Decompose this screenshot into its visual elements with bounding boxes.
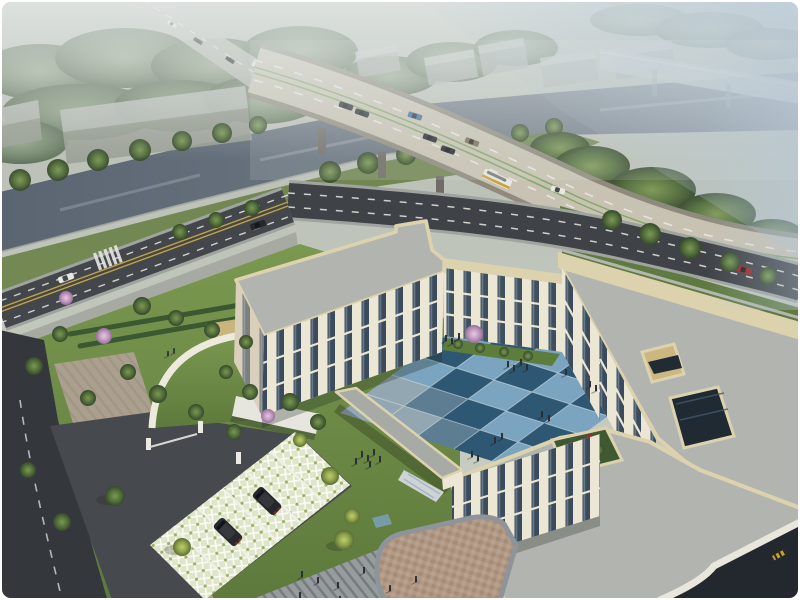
architectural-rendering: Hazy aerial rendering of a cream three-s… [2,2,798,598]
blossom-tree [96,328,112,344]
rendering-stage: Hazy aerial rendering of a cream three-s… [2,2,798,598]
rendering-frame: Hazy aerial rendering of a cream three-s… [0,0,800,600]
blossom-tree [465,325,483,343]
blossom-tree [59,291,73,305]
blossom-tree [261,409,275,423]
